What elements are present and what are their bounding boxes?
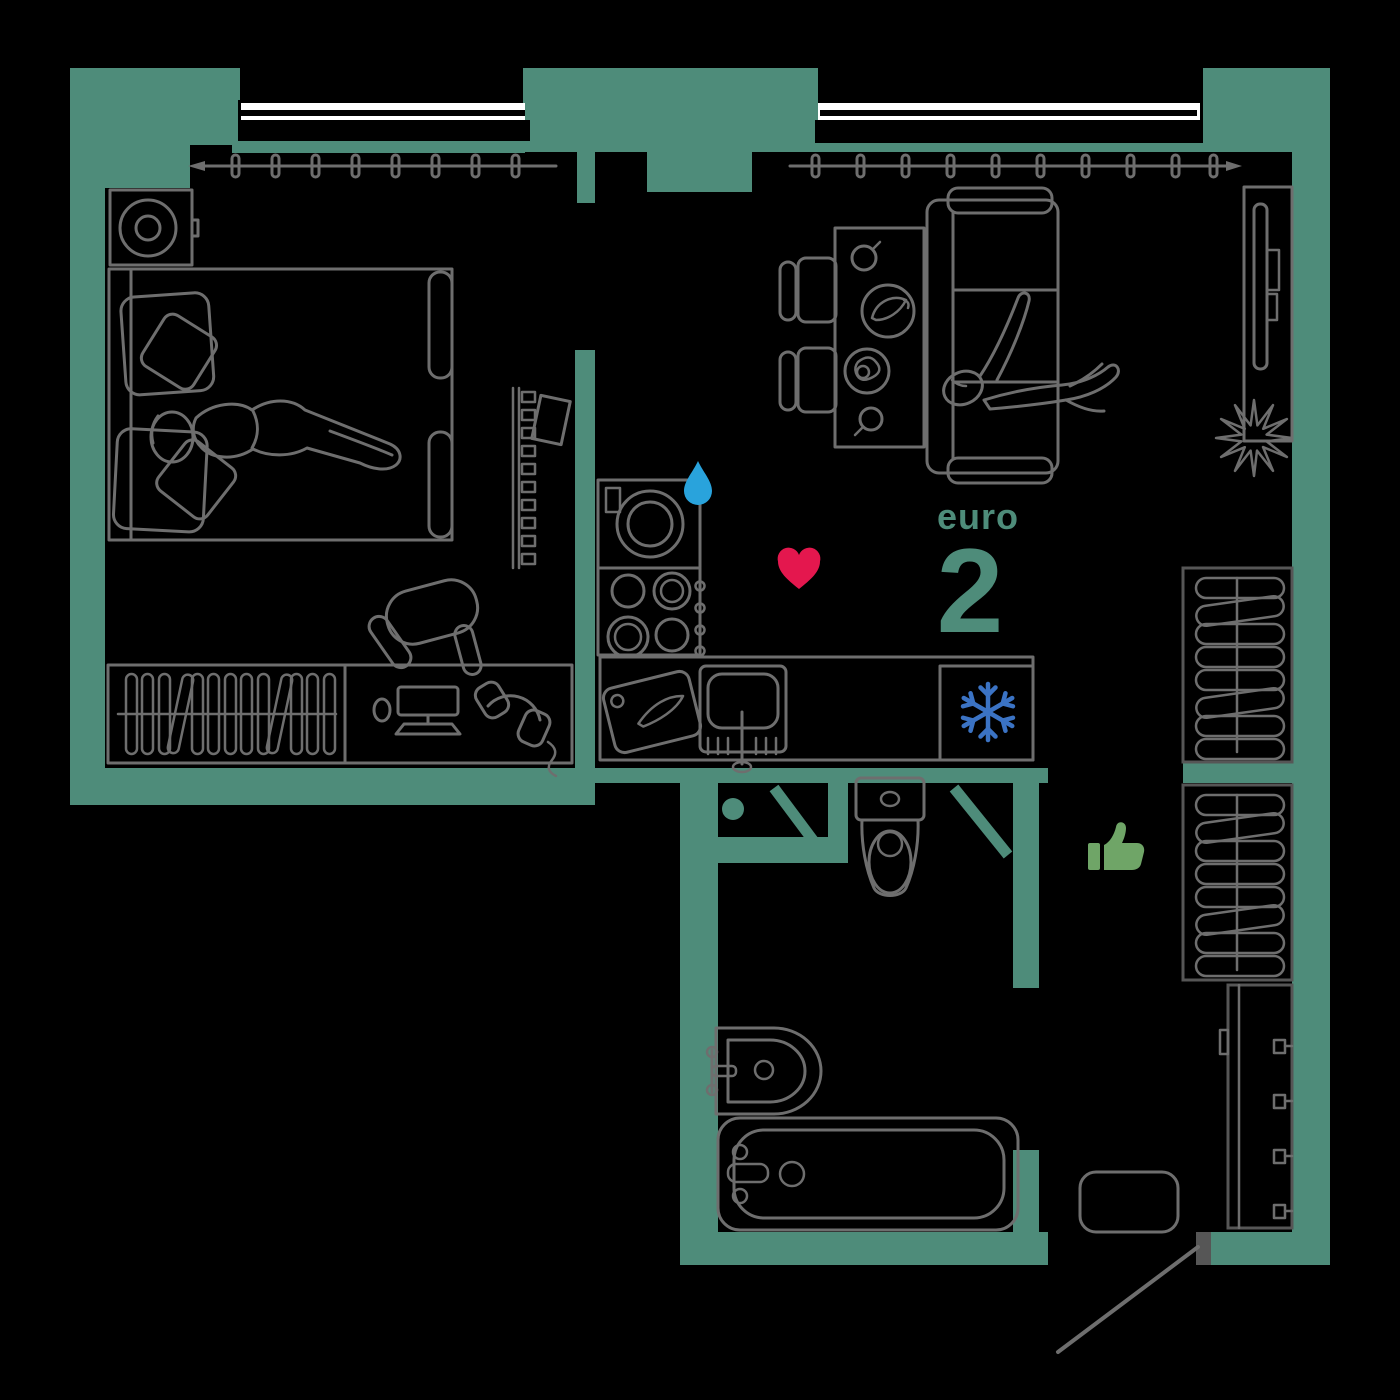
window-living bbox=[815, 103, 1203, 143]
tv-console bbox=[1244, 187, 1292, 441]
water-drop-icon bbox=[684, 461, 712, 505]
label-number: 2 bbox=[937, 524, 1004, 658]
cutting-board bbox=[601, 669, 702, 754]
ladder-shelf bbox=[513, 388, 570, 568]
living-wardrobe bbox=[1183, 568, 1292, 762]
mouse bbox=[374, 699, 390, 721]
hallway bbox=[1058, 785, 1292, 1352]
headphones bbox=[472, 679, 556, 776]
bed-post bbox=[429, 272, 452, 378]
bathtub bbox=[718, 1118, 1018, 1230]
bed-post bbox=[429, 432, 452, 537]
chair-1 bbox=[780, 258, 836, 322]
cup bbox=[860, 408, 882, 430]
plate-croissant bbox=[862, 285, 914, 337]
hooks bbox=[1274, 1040, 1292, 1218]
pillow-small bbox=[138, 310, 221, 393]
monitor bbox=[398, 687, 458, 715]
window-bedroom bbox=[238, 103, 530, 141]
lounging-person bbox=[938, 293, 1118, 411]
hall-wardrobe bbox=[1183, 785, 1292, 980]
countertop bbox=[600, 657, 1033, 760]
wall-wardrobe-divider bbox=[1183, 763, 1292, 783]
rug bbox=[1080, 1172, 1178, 1232]
thumbs-up-icon bbox=[1088, 822, 1144, 870]
cooktop bbox=[598, 568, 705, 657]
snowflake-icon bbox=[960, 684, 1016, 740]
wall-bedroom-right bbox=[575, 350, 595, 770]
book bbox=[532, 395, 570, 444]
window-sill-living bbox=[818, 143, 1210, 152]
keyboard bbox=[396, 724, 460, 734]
bathroom-door-leaf-2 bbox=[954, 788, 1008, 855]
chair-seat bbox=[381, 574, 484, 650]
desk bbox=[345, 665, 572, 776]
living-room bbox=[780, 187, 1292, 762]
window-sill-bedroom bbox=[232, 141, 525, 153]
kitchen-sink bbox=[700, 666, 786, 772]
floor-plan: euro 2 bbox=[0, 0, 1400, 1400]
shoe-cabinet bbox=[1220, 985, 1292, 1228]
heart-icon bbox=[778, 548, 821, 589]
knife bbox=[634, 695, 688, 728]
plant bbox=[1216, 400, 1292, 476]
bedside-table bbox=[110, 190, 198, 265]
wall-bathroom-bottom bbox=[680, 1232, 1048, 1265]
sleeping-person bbox=[151, 401, 400, 469]
wall-left bbox=[70, 188, 105, 805]
toilet-tank bbox=[856, 778, 924, 820]
wall-top-middle bbox=[523, 68, 818, 152]
bathroom-sink bbox=[707, 1028, 821, 1114]
wall-bedroom-bottom bbox=[72, 768, 595, 805]
bedroom-wardrobe bbox=[108, 665, 345, 763]
plate-egg bbox=[845, 349, 889, 393]
tub-drain bbox=[780, 1162, 804, 1186]
pillow-small bbox=[153, 436, 240, 523]
tv bbox=[1254, 204, 1267, 369]
bedroom bbox=[108, 190, 572, 776]
window-frame bbox=[815, 120, 1203, 143]
table-lamp bbox=[120, 200, 176, 256]
office-chair bbox=[365, 574, 483, 676]
floor-plan-page: euro 2 bbox=[0, 0, 1400, 1400]
window-frame bbox=[238, 120, 530, 141]
apartment-label: euro 2 bbox=[937, 496, 1019, 658]
wall-right bbox=[1292, 152, 1330, 1232]
curtain-rail-bedroom bbox=[188, 155, 556, 177]
entrance-door-swing bbox=[1058, 1247, 1198, 1352]
dining-table bbox=[835, 228, 924, 447]
refrigerator bbox=[940, 666, 1033, 760]
sofa-armrest bbox=[948, 458, 1052, 483]
double-bed bbox=[109, 269, 452, 540]
sofa bbox=[927, 188, 1058, 483]
chair-2 bbox=[780, 348, 836, 412]
curtain-rail-living bbox=[790, 155, 1242, 177]
floor-drain-dot bbox=[722, 798, 744, 820]
toilet bbox=[856, 778, 924, 896]
